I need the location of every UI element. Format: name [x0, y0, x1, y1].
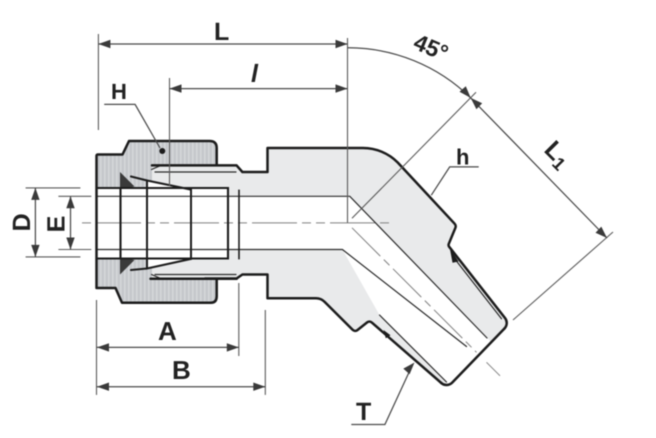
- svg-text:A: A: [158, 316, 177, 346]
- svg-text:h: h: [456, 145, 469, 170]
- svg-text:H: H: [111, 79, 127, 104]
- svg-text:D: D: [8, 213, 36, 231]
- svg-text:L: L: [214, 18, 229, 46]
- svg-text:B: B: [172, 355, 191, 385]
- svg-text:E: E: [43, 216, 71, 233]
- svg-text:l: l: [251, 60, 259, 88]
- svg-text:T: T: [356, 398, 371, 426]
